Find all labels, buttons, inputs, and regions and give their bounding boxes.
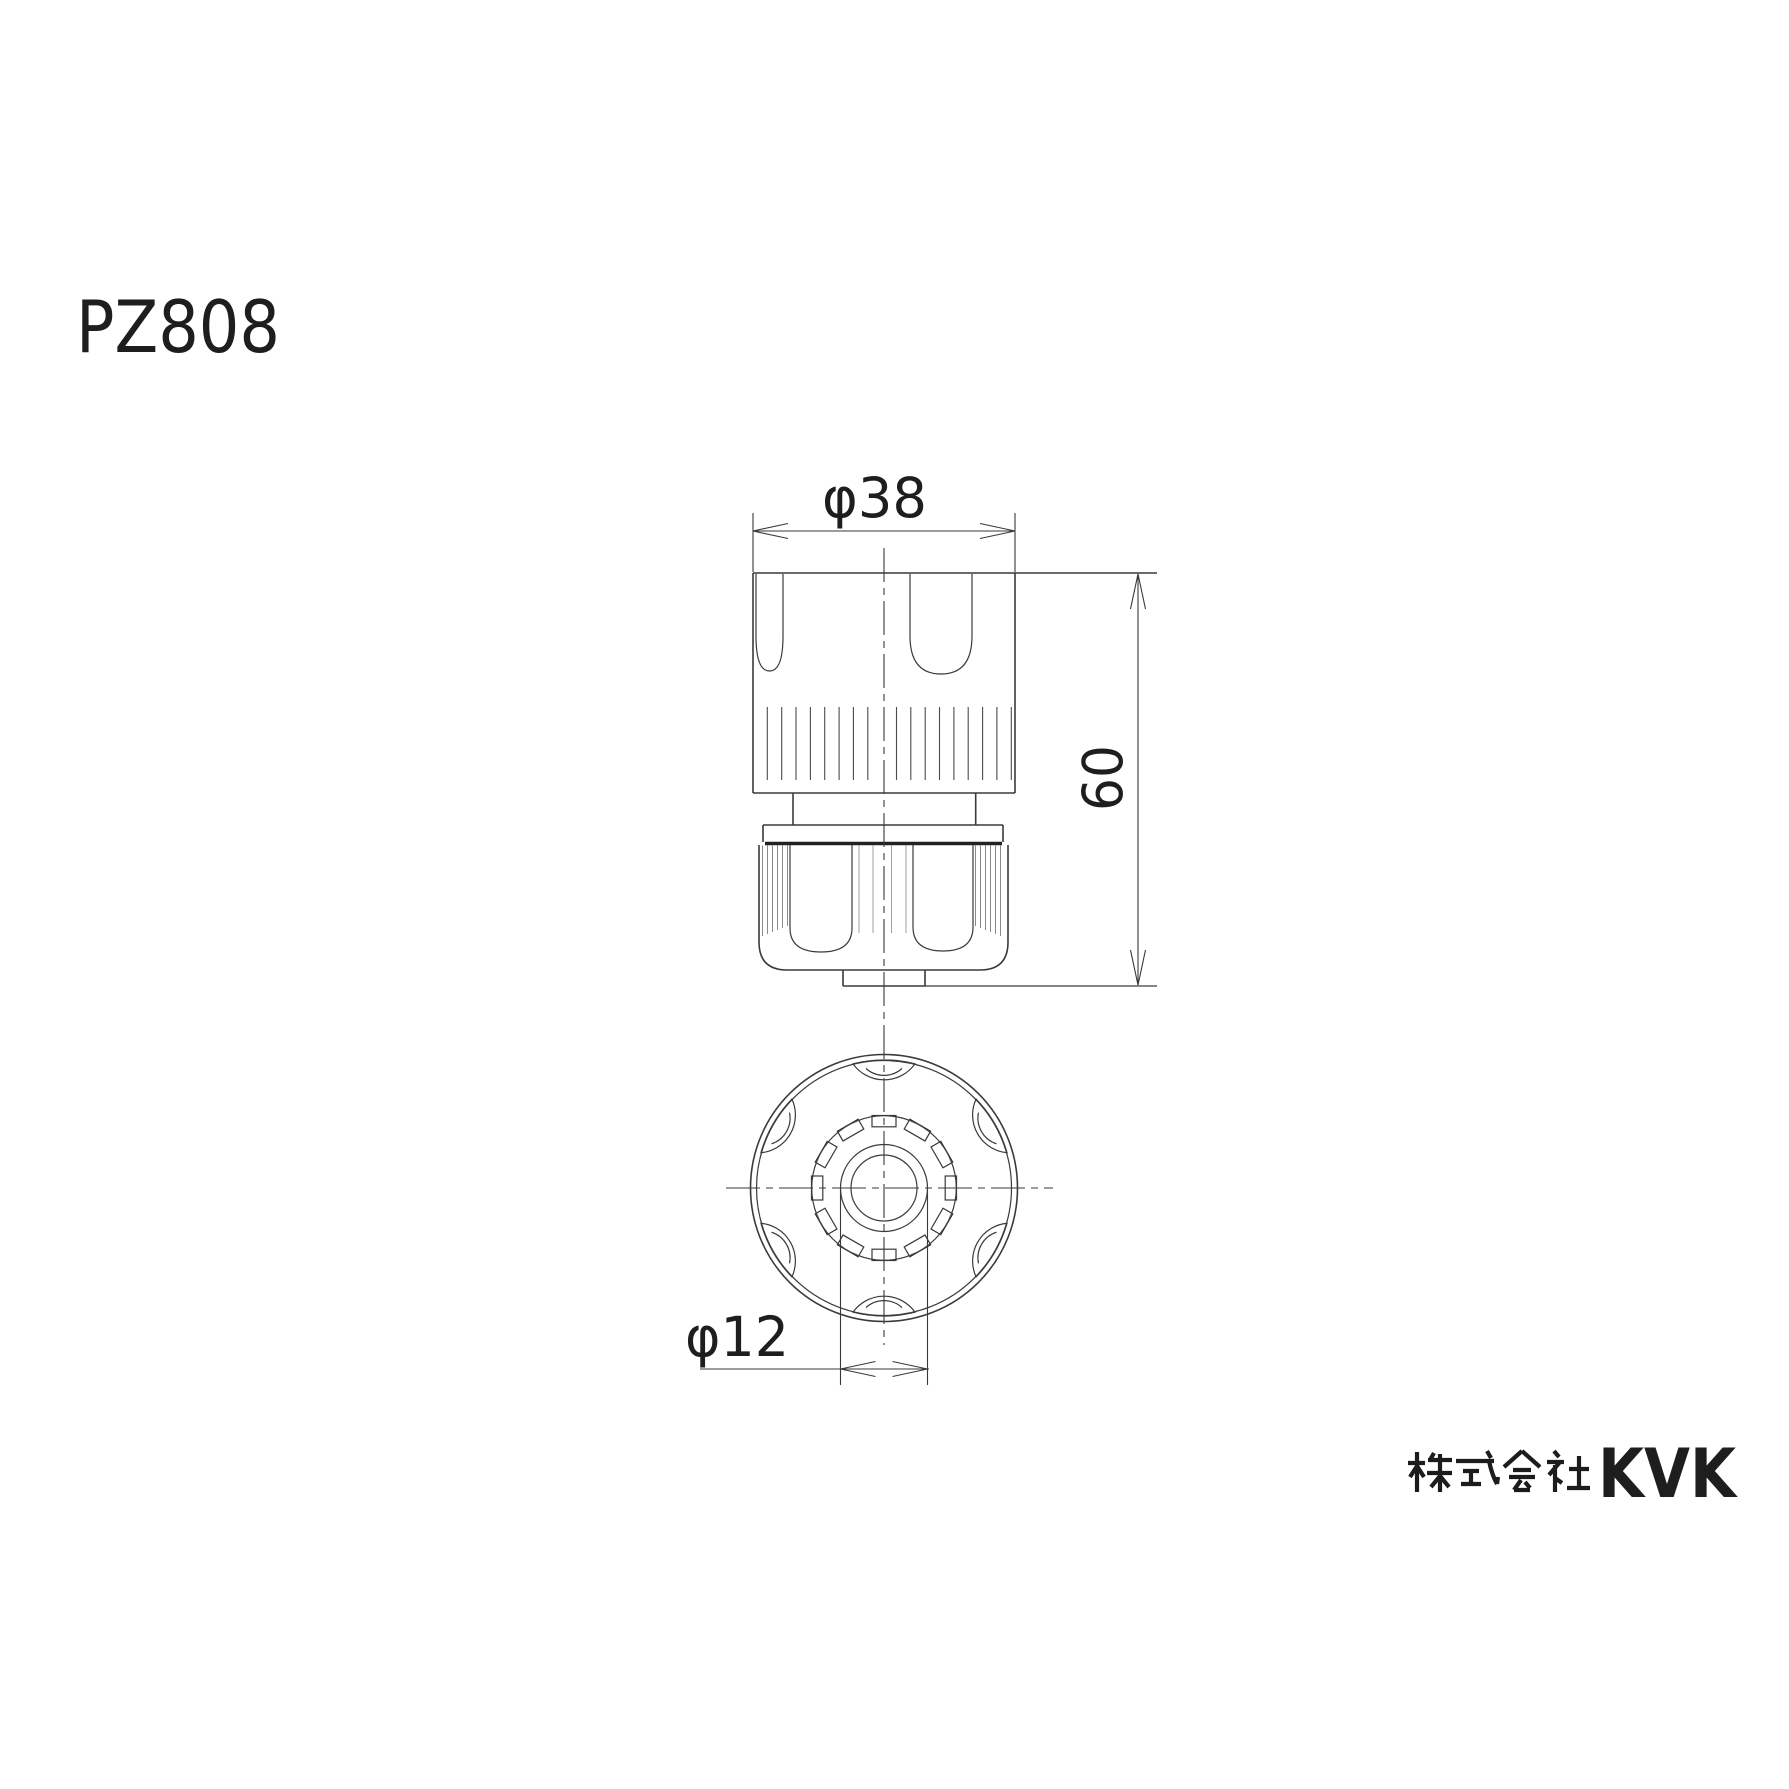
page-title-model-number: PZ808 [76,285,280,369]
cup-slot-left [790,845,852,952]
cup-slot-right [913,845,973,951]
knob-slot-left [756,574,783,671]
dimension-outlet-diameter: φ12 [685,1188,929,1385]
kanji-sha [1547,1451,1590,1492]
cup-edge-shading-left [763,846,788,937]
brand-logo-text: KVK [1598,1435,1738,1514]
cup-center-shading [859,846,906,934]
dimension-text-60: 60 [1071,745,1135,811]
knurl-band [767,707,1011,780]
kanji-kai [1504,1451,1540,1490]
bottom-view [726,1055,1053,1322]
company-logo: 株式会社 KVK [1408,1435,1738,1514]
dimension-text-phi12: φ12 [685,1305,789,1369]
drawing-sheet: PZ808 [0,0,1789,1789]
cup-edge-shading-right [976,846,1001,937]
kanji-shiki [1456,1451,1498,1484]
technical-drawing-canvas: PZ808 [0,0,1789,1789]
flange-outline [763,825,1003,842]
kanji-kabu [1408,1452,1452,1492]
dimension-overall-height: 60 [1071,574,1146,985]
knob-slot-right [910,574,972,674]
dimension-text-phi38: φ38 [822,466,927,530]
company-name-kanji: 株式会社 [1408,1451,1590,1492]
